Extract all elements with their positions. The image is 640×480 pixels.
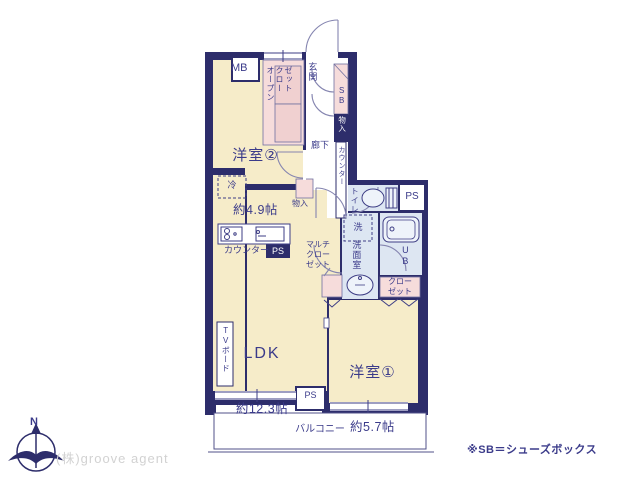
closet-label: クロー ゼット — [378, 277, 422, 296]
ldk-size: 約12.3帖 — [212, 402, 312, 416]
yoshitsu2-name: 洋室② — [208, 147, 303, 164]
compass-north-label: N — [30, 416, 38, 429]
toilet-tank — [386, 188, 397, 208]
toilet-label: トイレ — [350, 187, 359, 214]
genkan-label: 玄関 — [307, 62, 317, 82]
company-name: (株)groove agent — [56, 452, 169, 467]
sb-footnote: ※SB＝シューズボックス — [467, 444, 597, 457]
washer-label: 洗 — [344, 222, 372, 232]
balcony-label: バルコニー — [270, 424, 370, 436]
yoshitsu1-name: 洋室① — [325, 364, 420, 381]
ps-kitchen-label: PS — [266, 246, 290, 256]
toilet-bowl — [362, 189, 384, 207]
counter-kitchen-label: カウンター — [224, 245, 269, 255]
counter-hall-label: カウンター — [337, 146, 345, 186]
sb-label: SB — [337, 86, 346, 106]
mb-label: MB — [231, 62, 259, 75]
rouka-label: 廊下 — [311, 140, 329, 150]
ps-lower-label: PS — [296, 390, 325, 400]
open-closet-label: オープン クロー ゼット — [266, 66, 293, 102]
ps-upper-label: PS — [399, 191, 425, 203]
multi-closet-box — [322, 275, 342, 297]
yoshitsu2-size: 約4.9帖 — [208, 203, 303, 217]
monoire-hall-label: 物入 — [337, 116, 346, 133]
monoire-kitchen-label: 物入 — [292, 199, 308, 208]
senmenshitsu-label: 洗面室 — [351, 240, 361, 270]
fridge-label: 冷 — [218, 180, 246, 190]
tv-board-label: TVボード — [221, 326, 230, 373]
multi-closet-label: マルチ クロー ゼット — [306, 240, 330, 270]
floor-plan-page: MB オープン クロー ゼット 玄関 SB 物入 廊下 カウンター 洋室② 約4… — [0, 0, 640, 480]
yoshitsu1-label: 洋室① 約5.7帖 — [325, 327, 420, 471]
ub-label: UB — [400, 245, 410, 267]
